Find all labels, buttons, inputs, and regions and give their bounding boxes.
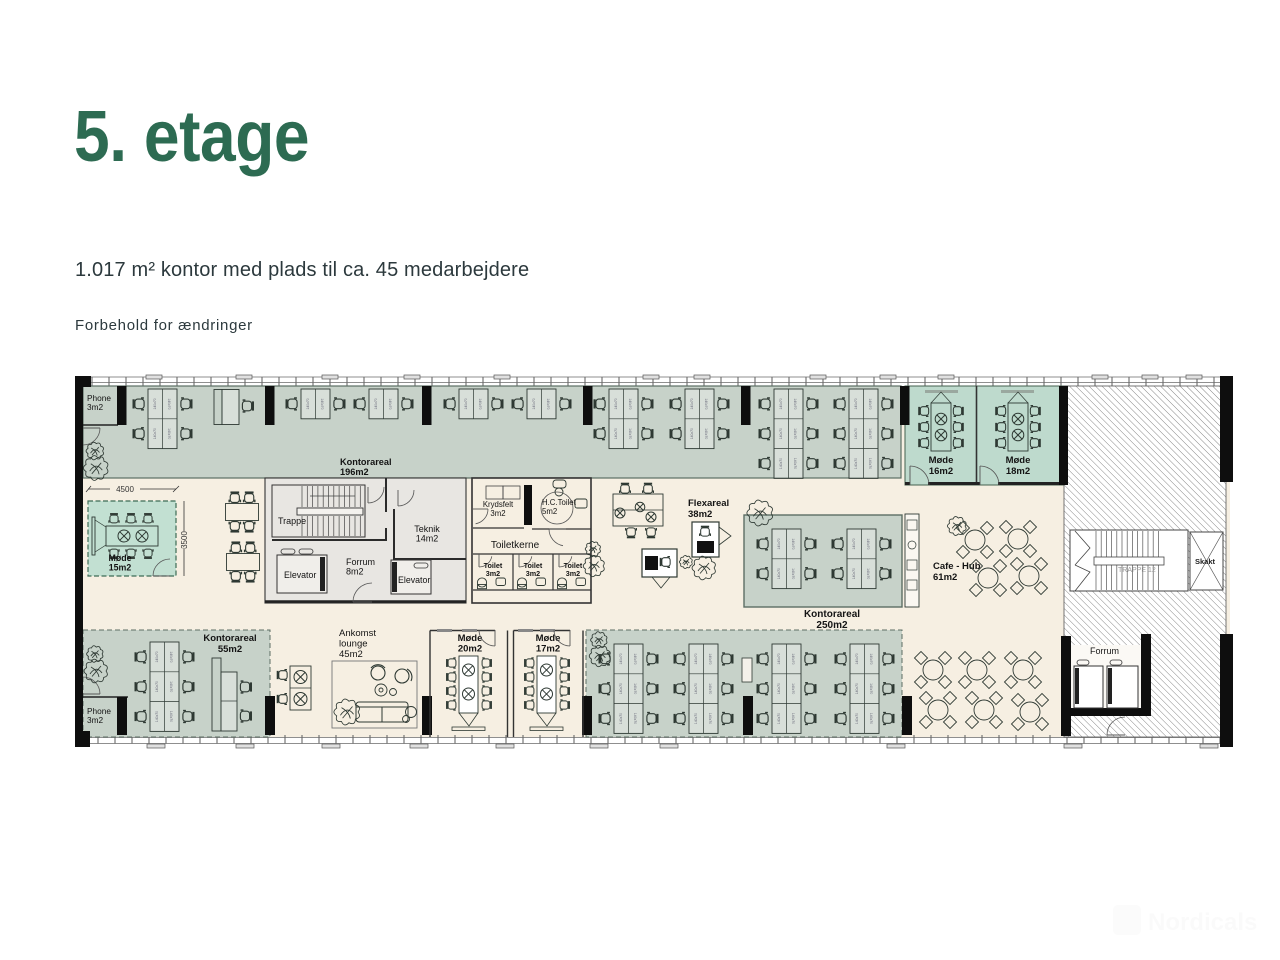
svg-text:61m2: 61m2 — [933, 572, 957, 583]
svg-text:140x70: 140x70 — [153, 428, 157, 439]
svg-text:Flexareal: Flexareal — [688, 498, 729, 509]
svg-text:3m2: 3m2 — [566, 569, 580, 578]
svg-text:140x70: 140x70 — [704, 398, 708, 409]
svg-text:4500: 4500 — [116, 485, 134, 494]
svg-text:140x70: 140x70 — [167, 428, 171, 439]
svg-text:140x70: 140x70 — [167, 398, 171, 409]
svg-text:140x70: 140x70 — [694, 683, 698, 694]
svg-text:3500: 3500 — [180, 531, 189, 549]
svg-text:14m2: 14m2 — [416, 534, 439, 544]
svg-text:140x70: 140x70 — [852, 538, 856, 549]
svg-text:140x70: 140x70 — [869, 683, 873, 694]
svg-text:45m2: 45m2 — [339, 649, 363, 660]
svg-text:140x70: 140x70 — [464, 398, 468, 409]
svg-text:140x70: 140x70 — [793, 428, 797, 439]
svg-text:140x70: 140x70 — [306, 398, 310, 409]
svg-text:Krydsfelt: Krydsfelt — [483, 500, 514, 509]
svg-text:140x70: 140x70 — [633, 713, 637, 724]
svg-text:140x70: 140x70 — [777, 713, 781, 724]
svg-text:H.C.Toilet: H.C.Toilet — [542, 498, 577, 507]
svg-text:140x70: 140x70 — [708, 653, 712, 664]
svg-text:Toiletkerne: Toiletkerne — [491, 540, 540, 551]
svg-text:140x70: 140x70 — [633, 683, 637, 694]
svg-text:140x70: 140x70 — [153, 398, 157, 409]
svg-text:Ankomst: Ankomst — [339, 628, 376, 639]
svg-text:Forrum: Forrum — [1090, 646, 1119, 656]
svg-text:140x70: 140x70 — [614, 398, 618, 409]
svg-text:140x70: 140x70 — [869, 713, 873, 724]
svg-text:16m2: 16m2 — [929, 466, 953, 477]
svg-text:140x70: 140x70 — [779, 398, 783, 409]
svg-text:Kontorareal: Kontorareal — [340, 457, 392, 467]
svg-text:140x70: 140x70 — [169, 681, 173, 692]
svg-text:Forrum: Forrum — [346, 557, 375, 567]
svg-text:Elevator: Elevator — [398, 575, 430, 585]
svg-text:3m2: 3m2 — [87, 402, 104, 412]
svg-text:5m2: 5m2 — [542, 507, 557, 516]
svg-text:Møde: Møde — [458, 633, 483, 644]
svg-text:140x70: 140x70 — [855, 713, 859, 724]
svg-text:140x70: 140x70 — [619, 653, 623, 664]
svg-text:3m2: 3m2 — [490, 509, 505, 518]
svg-text:Møde: Møde — [1006, 455, 1031, 466]
svg-text:140x70: 140x70 — [868, 428, 872, 439]
svg-text:140x70: 140x70 — [155, 681, 159, 692]
svg-text:140x70: 140x70 — [704, 428, 708, 439]
svg-text:Elevator: Elevator — [284, 570, 316, 580]
svg-text:140x70: 140x70 — [779, 428, 783, 439]
svg-text:Skakt: Skakt — [1195, 557, 1216, 566]
svg-text:Trappe: Trappe — [278, 516, 306, 526]
svg-text:196m2: 196m2 — [340, 467, 369, 477]
svg-text:250m2: 250m2 — [816, 620, 848, 631]
svg-text:140x70: 140x70 — [478, 398, 482, 409]
svg-text:38m2: 38m2 — [688, 509, 712, 520]
svg-text:3m2: 3m2 — [486, 569, 500, 578]
svg-text:140x70: 140x70 — [777, 538, 781, 549]
svg-text:Møde: Møde — [929, 455, 954, 466]
svg-text:140x70: 140x70 — [628, 398, 632, 409]
svg-text:15m2: 15m2 — [109, 563, 132, 573]
svg-text:8m2: 8m2 — [346, 567, 364, 577]
svg-text:140x70: 140x70 — [777, 568, 781, 579]
svg-text:140x70: 140x70 — [546, 398, 550, 409]
svg-text:55m2: 55m2 — [218, 644, 242, 655]
svg-text:140x70: 140x70 — [633, 653, 637, 664]
svg-text:140x70: 140x70 — [777, 653, 781, 664]
svg-text:140x70: 140x70 — [854, 398, 858, 409]
svg-text:140x70: 140x70 — [868, 398, 872, 409]
svg-text:140x70: 140x70 — [791, 683, 795, 694]
svg-text:140x70: 140x70 — [869, 653, 873, 664]
svg-text:140x70: 140x70 — [694, 713, 698, 724]
svg-text:140x70: 140x70 — [708, 713, 712, 724]
svg-text:Kontorareal: Kontorareal — [203, 633, 256, 644]
svg-text:140x70: 140x70 — [777, 683, 781, 694]
svg-text:140x70: 140x70 — [690, 398, 694, 409]
svg-text:140x70: 140x70 — [628, 428, 632, 439]
svg-text:20m2: 20m2 — [458, 644, 482, 655]
svg-text:140x70: 140x70 — [791, 568, 795, 579]
svg-text:140x70: 140x70 — [374, 398, 378, 409]
svg-text:Nordicals: Nordicals — [1148, 909, 1257, 936]
svg-text:140x70: 140x70 — [694, 653, 698, 664]
svg-text:140x70: 140x70 — [169, 651, 173, 662]
svg-text:Kontorareal: Kontorareal — [804, 609, 860, 620]
svg-text:3m2: 3m2 — [526, 569, 540, 578]
svg-text:140x70: 140x70 — [619, 683, 623, 694]
svg-text:140x70: 140x70 — [614, 428, 618, 439]
svg-text:140x70: 140x70 — [791, 538, 795, 549]
svg-text:18m2: 18m2 — [1006, 466, 1030, 477]
svg-text:140x70: 140x70 — [793, 458, 797, 469]
svg-text:3m2: 3m2 — [87, 715, 104, 725]
svg-text:Teknik: Teknik — [414, 524, 440, 534]
svg-text:140x70: 140x70 — [866, 568, 870, 579]
svg-text:140x70: 140x70 — [320, 398, 324, 409]
svg-text:140x70: 140x70 — [854, 428, 858, 439]
svg-text:TRAPPE 12: TRAPPE 12 — [1118, 567, 1156, 574]
svg-text:140x70: 140x70 — [793, 398, 797, 409]
svg-text:140x70: 140x70 — [854, 458, 858, 469]
svg-text:140x70: 140x70 — [155, 711, 159, 722]
svg-text:140x70: 140x70 — [868, 458, 872, 469]
svg-text:140x70: 140x70 — [855, 653, 859, 664]
svg-text:17m2: 17m2 — [536, 644, 560, 655]
svg-text:140x70: 140x70 — [155, 651, 159, 662]
svg-text:140x70: 140x70 — [169, 711, 173, 722]
svg-text:140x70: 140x70 — [690, 428, 694, 439]
svg-text:140x70: 140x70 — [619, 713, 623, 724]
svg-text:140x70: 140x70 — [779, 458, 783, 469]
svg-text:140x70: 140x70 — [791, 653, 795, 664]
svg-text:lounge: lounge — [339, 639, 368, 650]
svg-text:140x70: 140x70 — [708, 683, 712, 694]
svg-text:140x70: 140x70 — [852, 568, 856, 579]
svg-text:140x70: 140x70 — [532, 398, 536, 409]
svg-text:140x70: 140x70 — [388, 398, 392, 409]
svg-text:140x70: 140x70 — [855, 683, 859, 694]
svg-text:140x70: 140x70 — [866, 538, 870, 549]
svg-text:140x70: 140x70 — [791, 713, 795, 724]
svg-text:Møde: Møde — [109, 553, 132, 563]
